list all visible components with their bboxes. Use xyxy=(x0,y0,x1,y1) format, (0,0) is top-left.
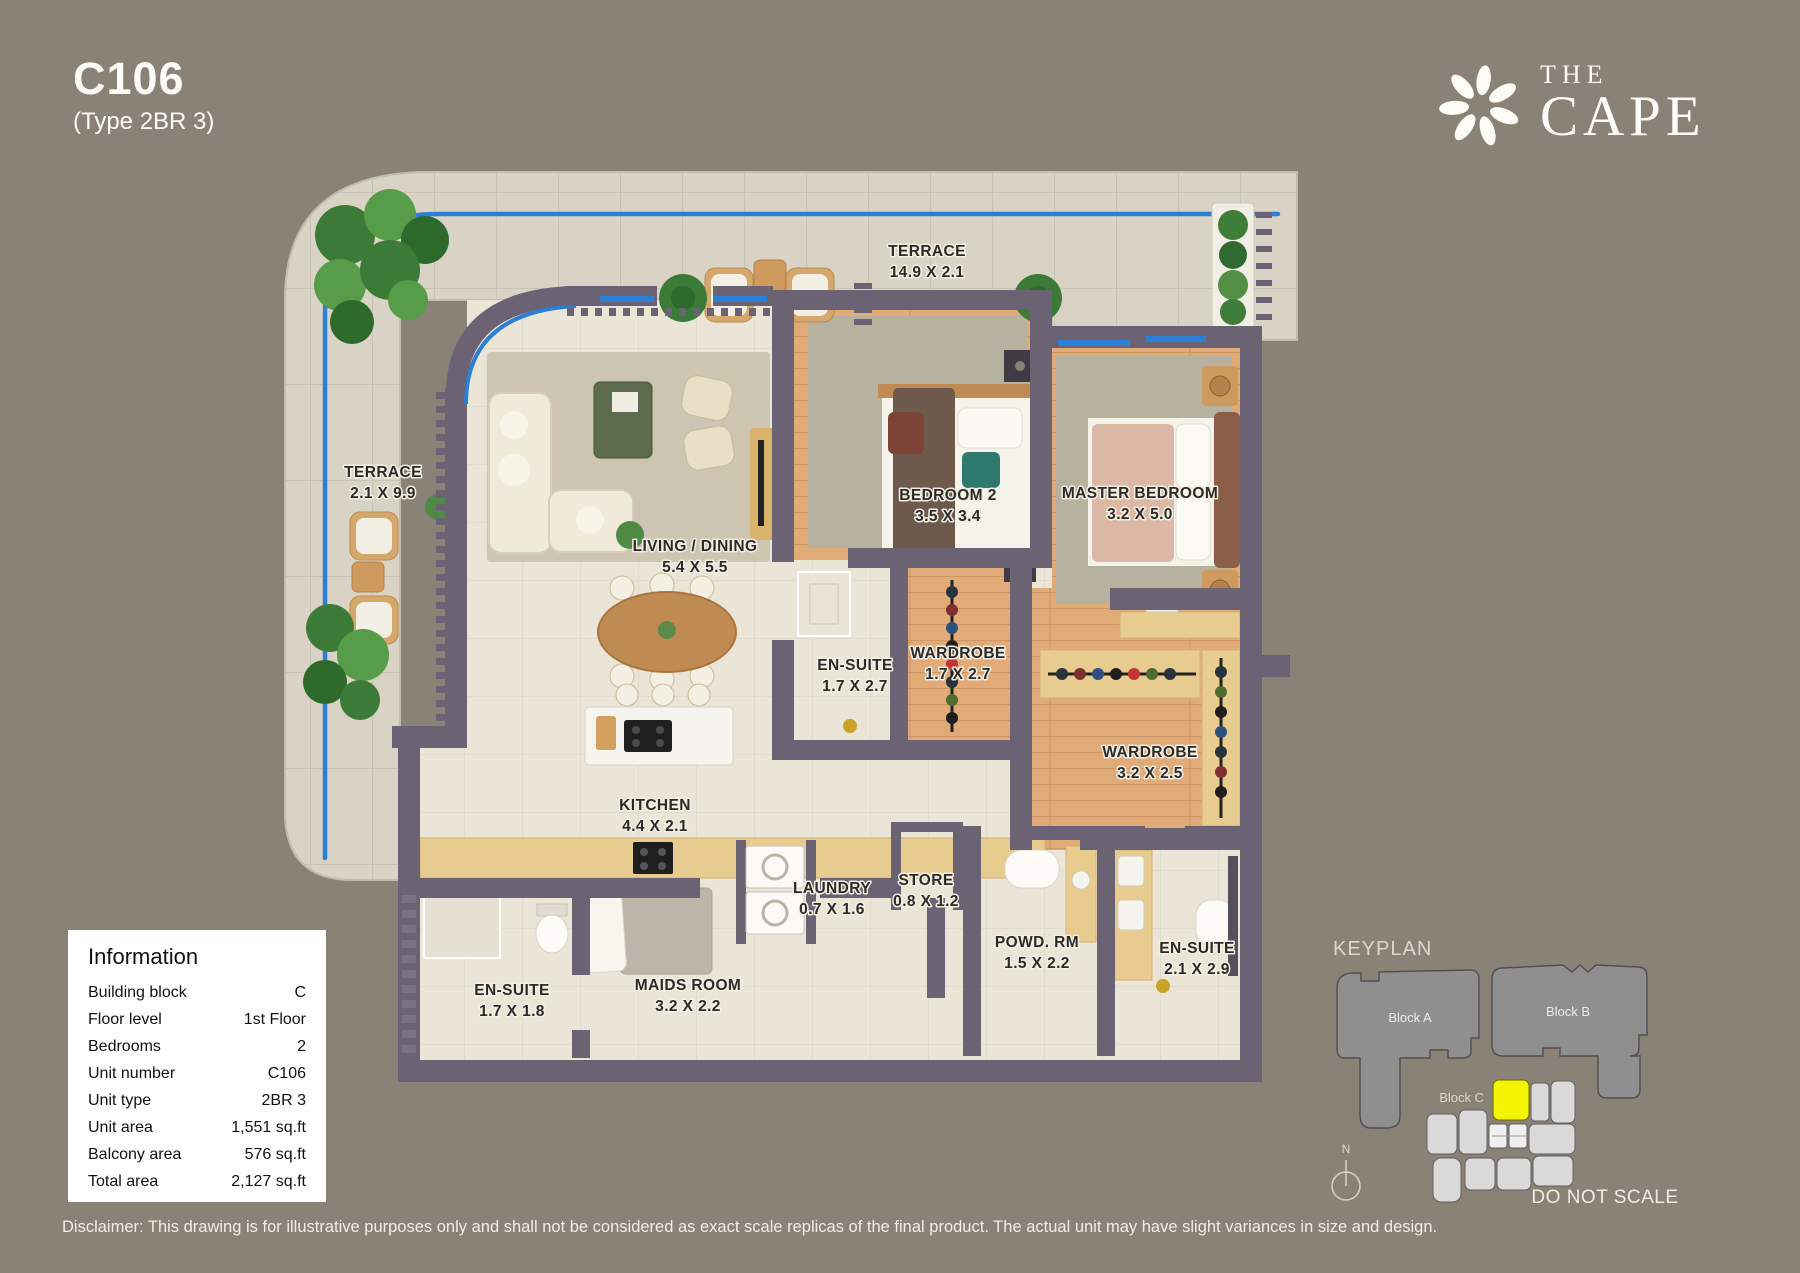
room-label-wardrobe-master: WARDROBE xyxy=(1102,744,1197,761)
compass-icon xyxy=(1332,1160,1360,1200)
disclaimer-text: Disclaimer: This drawing is for illustra… xyxy=(62,1218,1762,1237)
svg-text:1.7 X 1.8: 1.7 X 1.8 xyxy=(479,1003,545,1020)
compass-label: N xyxy=(1342,1142,1351,1156)
room-label-laundry: LAUNDRY xyxy=(793,880,871,897)
keyplan-block-b xyxy=(1492,965,1647,1098)
svg-text:3.2 X 5.0: 3.2 X 5.0 xyxy=(1107,506,1173,523)
room-label-store: STORE xyxy=(898,872,953,889)
svg-text:14.9 X 2.1: 14.9 X 2.1 xyxy=(890,264,965,281)
svg-text:0.8 X 1.2: 0.8 X 1.2 xyxy=(893,893,959,910)
lounge-chair xyxy=(682,424,736,472)
room-label-ensuite-master: EN-SUITE xyxy=(1159,940,1235,957)
svg-text:0.7 X 1.6: 0.7 X 1.6 xyxy=(799,901,865,918)
room-label-kitchen: KITCHEN xyxy=(619,797,691,814)
tv xyxy=(758,440,764,526)
svg-text:5.4 X 5.5: 5.4 X 5.5 xyxy=(662,559,728,576)
info-row: Balcony area576 sq.ft xyxy=(88,1141,306,1168)
maids-bed xyxy=(581,888,712,974)
room-label-powder-room: POWD. RM xyxy=(995,934,1079,951)
svg-text:3.5 X 3.4: 3.5 X 3.4 xyxy=(915,508,981,525)
room-label-living-dining: LIVING / DINING xyxy=(633,538,758,555)
keyplan-title: KEYPLAN xyxy=(1333,938,1432,960)
svg-text:3.2 X 2.5: 3.2 X 2.5 xyxy=(1117,765,1183,782)
keyplan: KEYPLAN Block A Block B Block C N DO NOT… xyxy=(1332,938,1679,1208)
room-label-wardrobe-bedroom2: WARDROBE xyxy=(910,645,1005,662)
information-title: Information xyxy=(88,944,306,970)
svg-text:3.2 X 2.2: 3.2 X 2.2 xyxy=(655,998,721,1015)
svg-text:1.7 X 2.7: 1.7 X 2.7 xyxy=(822,678,888,695)
room-label-terrace-top: TERRACE xyxy=(888,243,966,260)
keyplan-block-a-label: Block A xyxy=(1388,1010,1432,1025)
unit-type-subtitle: (Type 2BR 3) xyxy=(73,108,214,136)
svg-text:2.1 X 2.9: 2.1 X 2.9 xyxy=(1164,961,1230,978)
svg-text:4.4 X 2.1: 4.4 X 2.1 xyxy=(622,818,688,835)
room-label-ensuite-bedroom2: EN-SUITE xyxy=(817,657,893,674)
keyplan-unit-highlight xyxy=(1493,1080,1529,1120)
keyplan-block-c-label: Block C xyxy=(1439,1090,1484,1105)
floorplan-page: TERRACE 14.9 X 2.1 TERRACE 2.1 X 9.9 LIV… xyxy=(0,0,1800,1273)
brand-name-cape: CAPE xyxy=(1540,84,1706,149)
info-row: Total area2,127 sq.ft xyxy=(88,1168,306,1195)
terrace-planter xyxy=(1212,203,1254,331)
svg-text:1.5 X 2.2: 1.5 X 2.2 xyxy=(1004,955,1070,972)
info-row: Building blockC xyxy=(88,979,306,1006)
room-label-terrace-left: TERRACE xyxy=(344,464,422,481)
unit-code: C106 xyxy=(73,54,214,104)
page-header: C106 (Type 2BR 3) xyxy=(73,54,214,136)
coffee-table-tray xyxy=(612,392,638,412)
room-label-ensuite-maids: EN-SUITE xyxy=(474,982,550,999)
svg-text:2.1 X 9.9: 2.1 X 9.9 xyxy=(350,485,416,502)
room-label-maids-room: MAIDS ROOM xyxy=(635,977,741,994)
room-label-master-bedroom: MASTER BEDROOM xyxy=(1062,485,1218,502)
information-panel: Information Building blockC Floor level1… xyxy=(68,930,326,1202)
bedroom2-bed xyxy=(878,350,1038,582)
info-row: Bedrooms2 xyxy=(88,1033,306,1060)
keyplan-block-b-label: Block B xyxy=(1546,1004,1590,1019)
info-row: Unit area1,551 sq.ft xyxy=(88,1114,306,1141)
info-row: Floor level1st Floor xyxy=(88,1006,306,1033)
brand-logo: THE CAPE xyxy=(1432,58,1732,168)
info-row: Unit type2BR 3 xyxy=(88,1087,306,1114)
do-not-scale-label: DO NOT SCALE xyxy=(1531,1187,1678,1208)
room-label-bedroom-2: BEDROOM 2 xyxy=(899,487,996,504)
info-row: Unit numberC106 xyxy=(88,1060,306,1087)
svg-text:1.7 X 2.7: 1.7 X 2.7 xyxy=(925,666,991,683)
cape-flower-icon xyxy=(1432,58,1528,154)
